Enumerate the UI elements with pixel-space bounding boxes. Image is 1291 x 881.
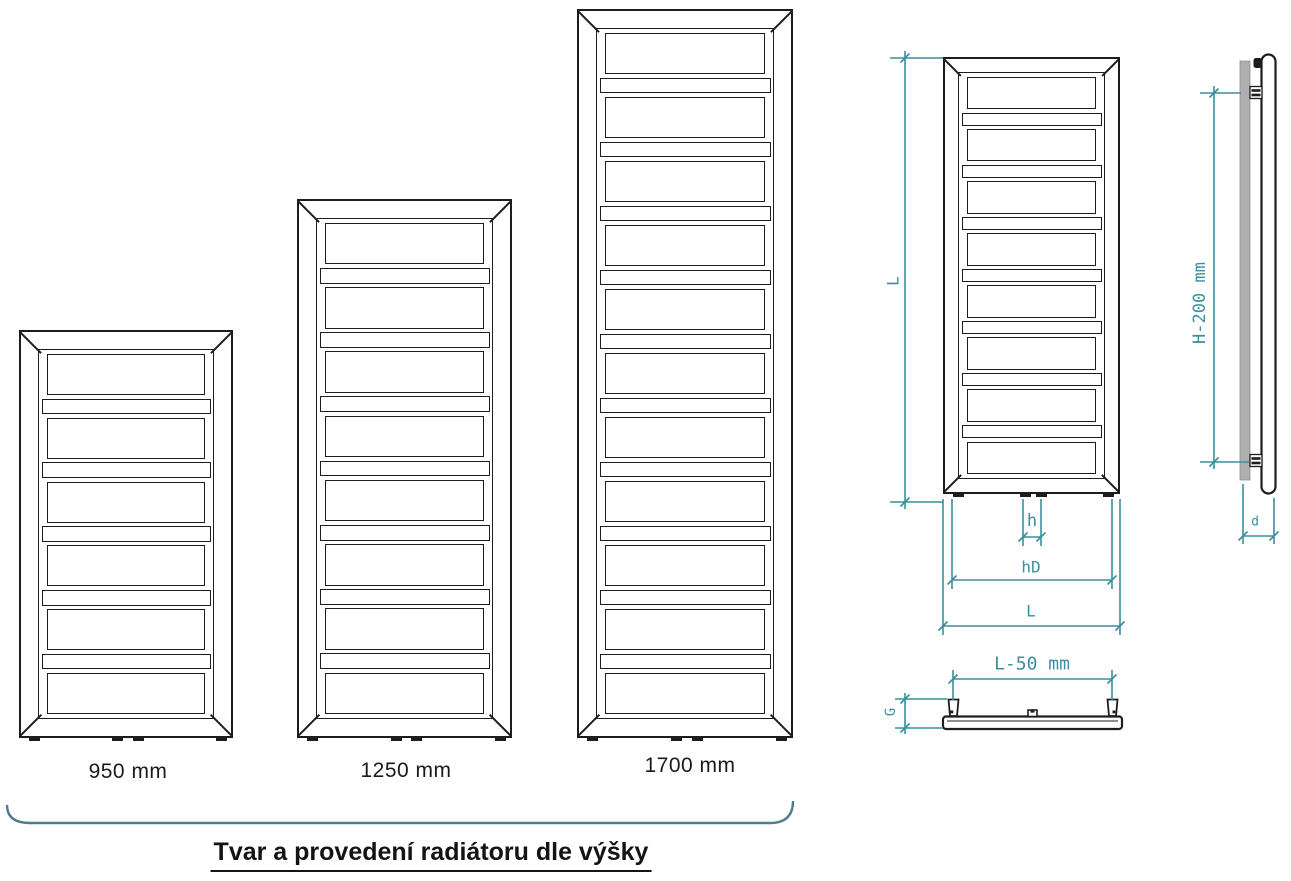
height-label-1700: 1700 mm <box>644 754 735 778</box>
air-vent-valve <box>1254 58 1263 68</box>
top-wall-bracket <box>1250 87 1262 99</box>
radiator-body-top-view <box>943 717 1122 730</box>
dim-label-front-width: L <box>1026 602 1036 621</box>
dim-label-depth: d <box>1251 515 1259 530</box>
dim-label-bracket-span-horizontal: L-50 mm <box>994 654 1070 675</box>
radiator-profile-tube <box>1262 55 1276 494</box>
dim-label-connection-spread: hD <box>1021 558 1040 577</box>
technical-drawing-canvas: 950 mm 1250 mm 1700 mm L h hD L H-200 mm… <box>0 0 1291 881</box>
dim-label-connection-offset: h <box>1027 511 1037 531</box>
left-bracket-top-view <box>949 700 959 717</box>
drawing-overlay <box>0 0 1291 881</box>
side-view <box>1240 55 1276 494</box>
dim-label-front-height: L <box>884 276 903 286</box>
dim-label-bracket-span-vertical: H-200 mm <box>1190 262 1210 344</box>
grouping-brace <box>7 801 793 823</box>
right-bracket-top-view <box>1108 700 1118 717</box>
drawing-caption: Tvar a provedení radiátoru dle výšky <box>211 838 652 872</box>
dim-label-bracket-depth: G <box>883 708 899 716</box>
height-label-950: 950 mm <box>89 760 168 784</box>
center-valve-nub <box>1028 710 1037 717</box>
bottom-wall-bracket <box>1250 455 1262 467</box>
dimension-lines <box>890 51 1279 734</box>
height-label-1250: 1250 mm <box>360 759 451 783</box>
bottom-view <box>943 700 1122 730</box>
wall-panel-bar <box>1240 61 1250 480</box>
